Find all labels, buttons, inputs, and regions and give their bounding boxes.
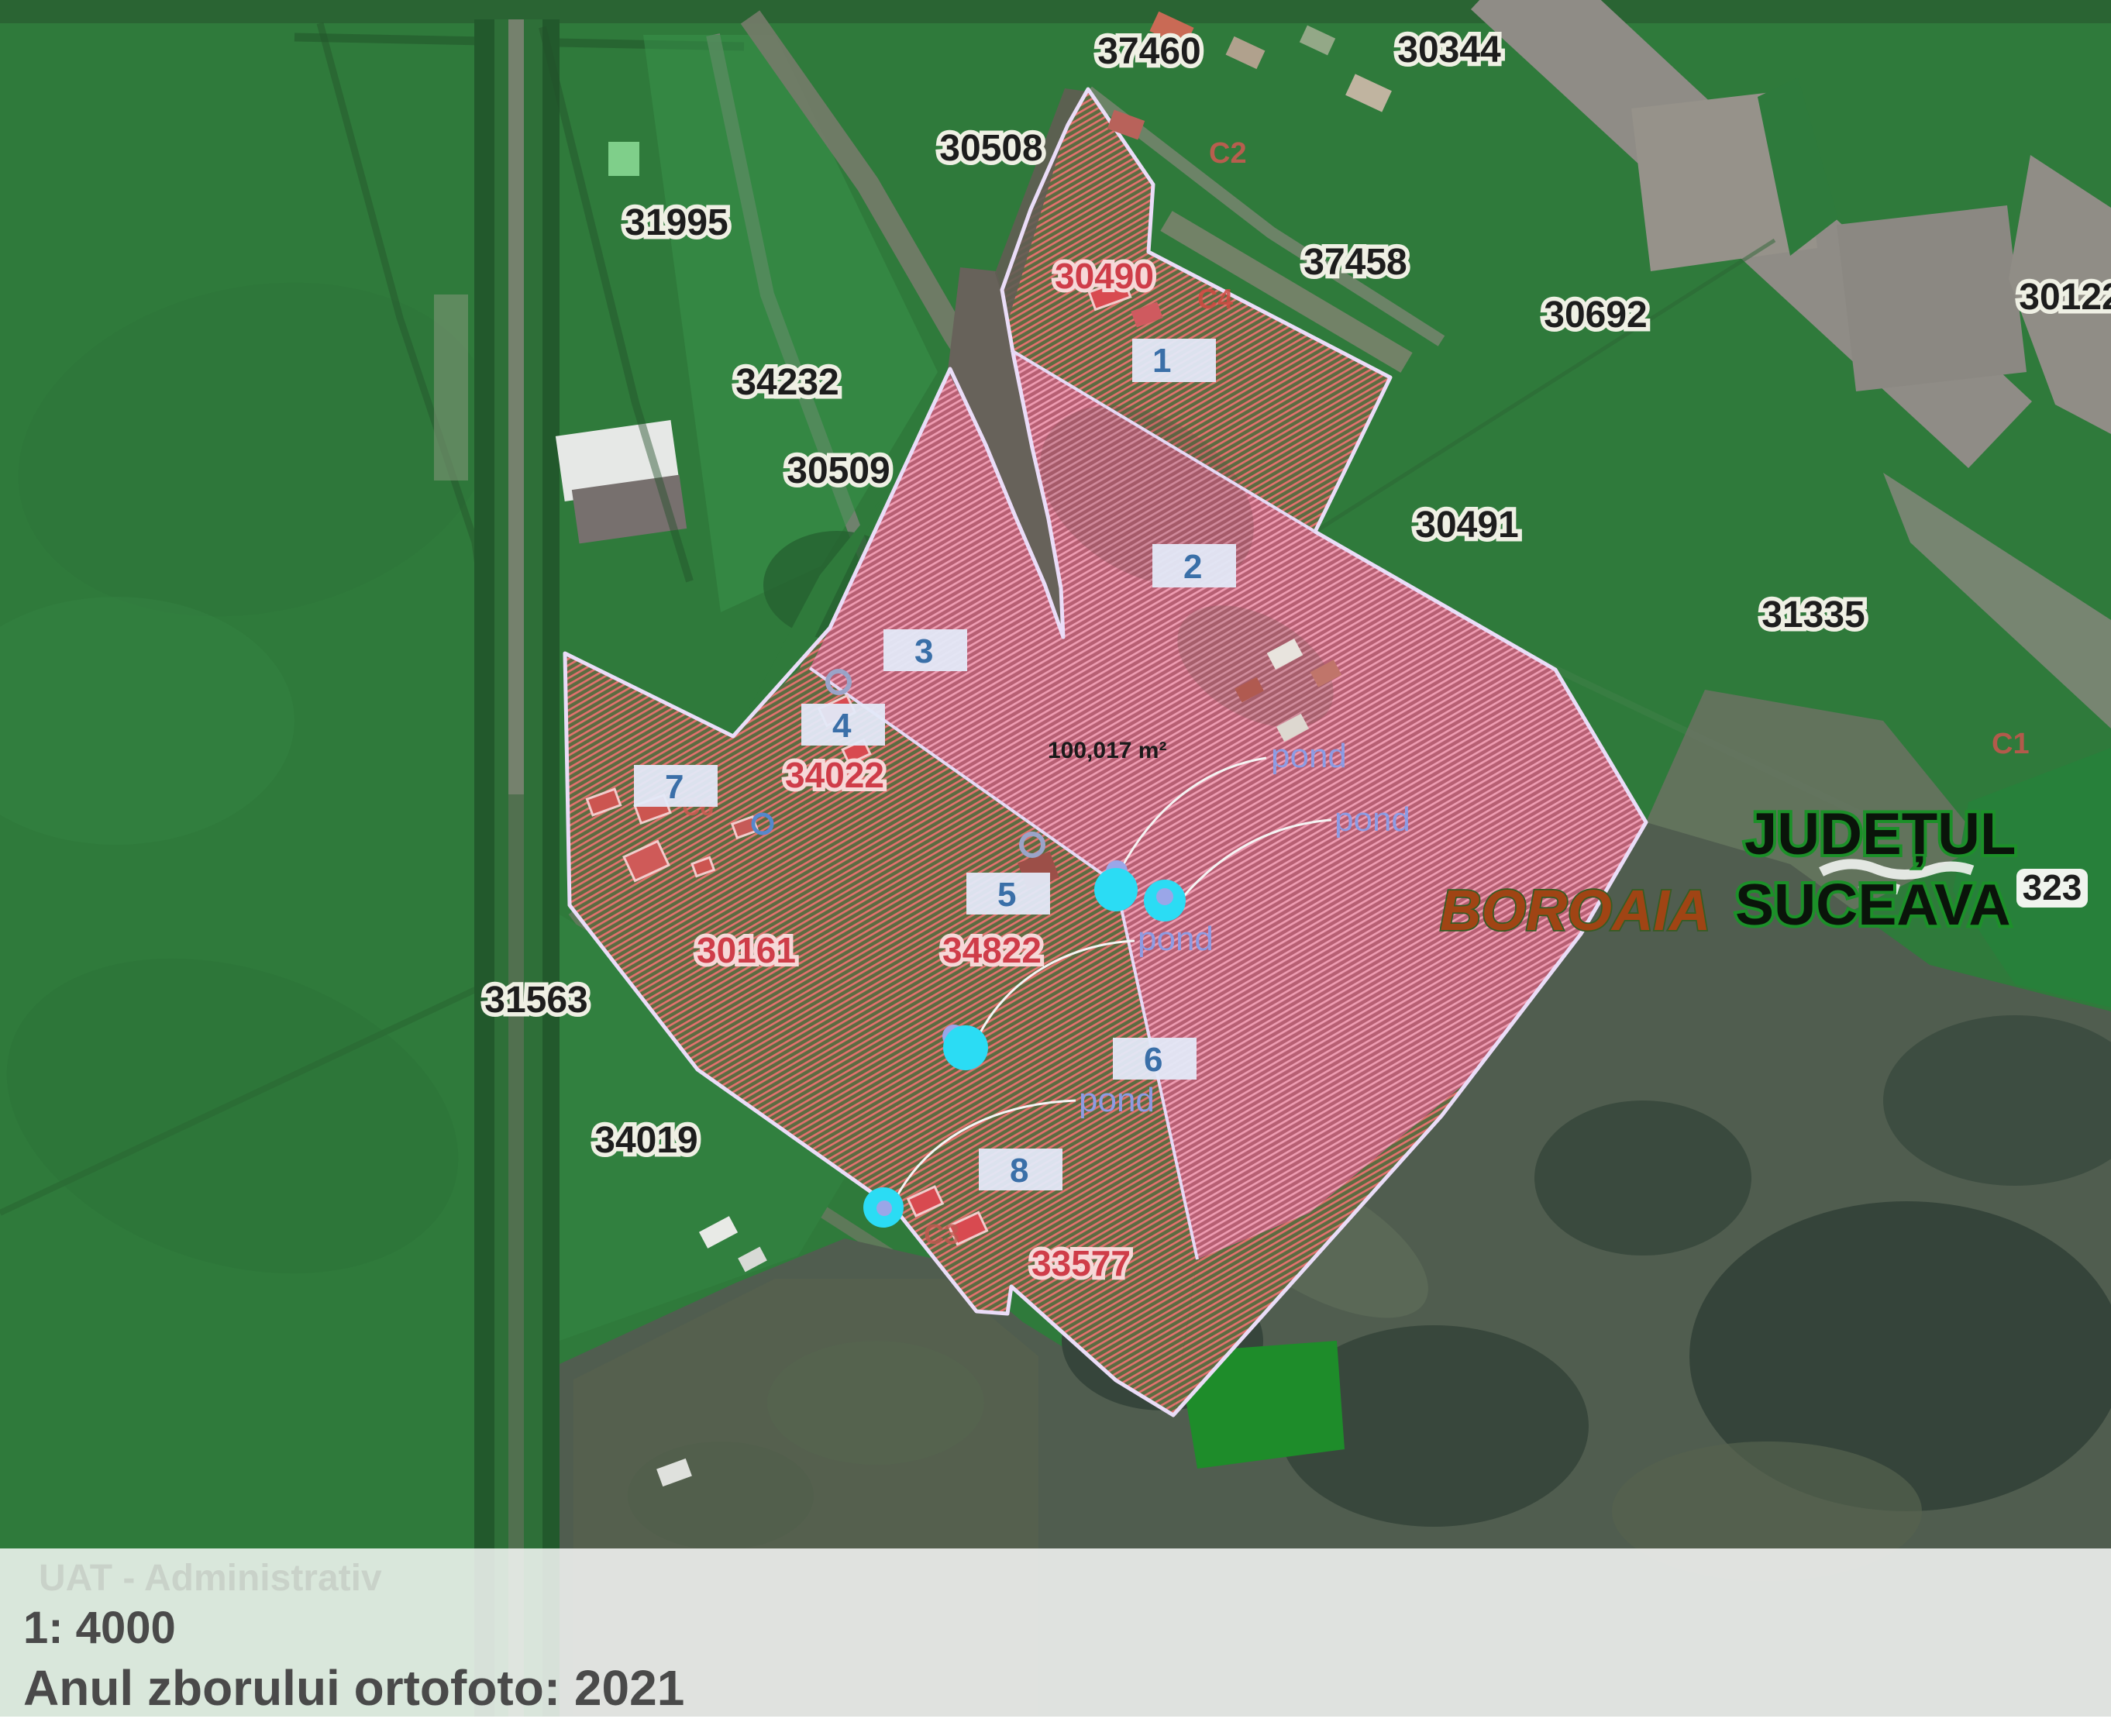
svg-text:30122: 30122 xyxy=(2019,277,2111,318)
svg-text:JUDEȚUL: JUDEȚUL xyxy=(1744,801,2016,867)
svg-text:7: 7 xyxy=(665,768,684,806)
svg-text:6: 6 xyxy=(1144,1041,1162,1079)
svg-text:pond: pond xyxy=(1079,1081,1155,1119)
svg-text:34232: 34232 xyxy=(735,362,839,403)
svg-text:3: 3 xyxy=(914,632,933,670)
svg-text:1: 4000: 1: 4000 xyxy=(23,1603,176,1653)
svg-text:pond: pond xyxy=(1138,920,1214,958)
svg-text:BOROAIA: BOROAIA xyxy=(1440,878,1710,942)
svg-text:30344: 30344 xyxy=(1397,29,1501,71)
svg-text:33577: 33577 xyxy=(1031,1243,1131,1283)
svg-text:31563: 31563 xyxy=(484,980,587,1021)
svg-text:Anul zborului ortofoto: 2021: Anul zborului ortofoto: 2021 xyxy=(23,1660,684,1716)
svg-text:UAT - Administrativ: UAT - Administrativ xyxy=(39,1558,382,1599)
svg-text:30692: 30692 xyxy=(1544,294,1647,336)
svg-text:30161: 30161 xyxy=(697,930,796,970)
svg-text:pond: pond xyxy=(1334,801,1410,839)
svg-text:30491: 30491 xyxy=(1415,505,1518,546)
svg-text:8: 8 xyxy=(1010,1152,1028,1190)
svg-text:C3: C3 xyxy=(924,1218,959,1250)
svg-text:37458: 37458 xyxy=(1303,242,1407,283)
svg-text:pond: pond xyxy=(1271,737,1347,775)
svg-text:37460: 37460 xyxy=(1097,31,1200,72)
svg-text:34019: 34019 xyxy=(594,1120,697,1161)
svg-text:5: 5 xyxy=(997,876,1016,914)
svg-text:2: 2 xyxy=(1183,548,1202,586)
svg-text:C4: C4 xyxy=(1197,283,1233,315)
svg-text:100,017 m²: 100,017 m² xyxy=(1048,738,1166,763)
svg-text:323: 323 xyxy=(2023,867,2082,908)
svg-text:30490: 30490 xyxy=(1055,256,1154,296)
svg-text:31335: 31335 xyxy=(1761,594,1865,635)
svg-text:4: 4 xyxy=(832,707,852,745)
svg-text:SUCEAVA: SUCEAVA xyxy=(1735,872,2011,937)
svg-text:1: 1 xyxy=(1152,342,1171,380)
svg-text:30509: 30509 xyxy=(787,450,890,491)
svg-text:34822: 34822 xyxy=(942,930,1042,970)
svg-text:C2: C2 xyxy=(1209,137,1247,170)
svg-text:30508: 30508 xyxy=(939,128,1042,169)
svg-text:C1: C1 xyxy=(1992,728,2030,760)
svg-text:31995: 31995 xyxy=(625,202,728,243)
svg-text:34022: 34022 xyxy=(785,755,884,795)
